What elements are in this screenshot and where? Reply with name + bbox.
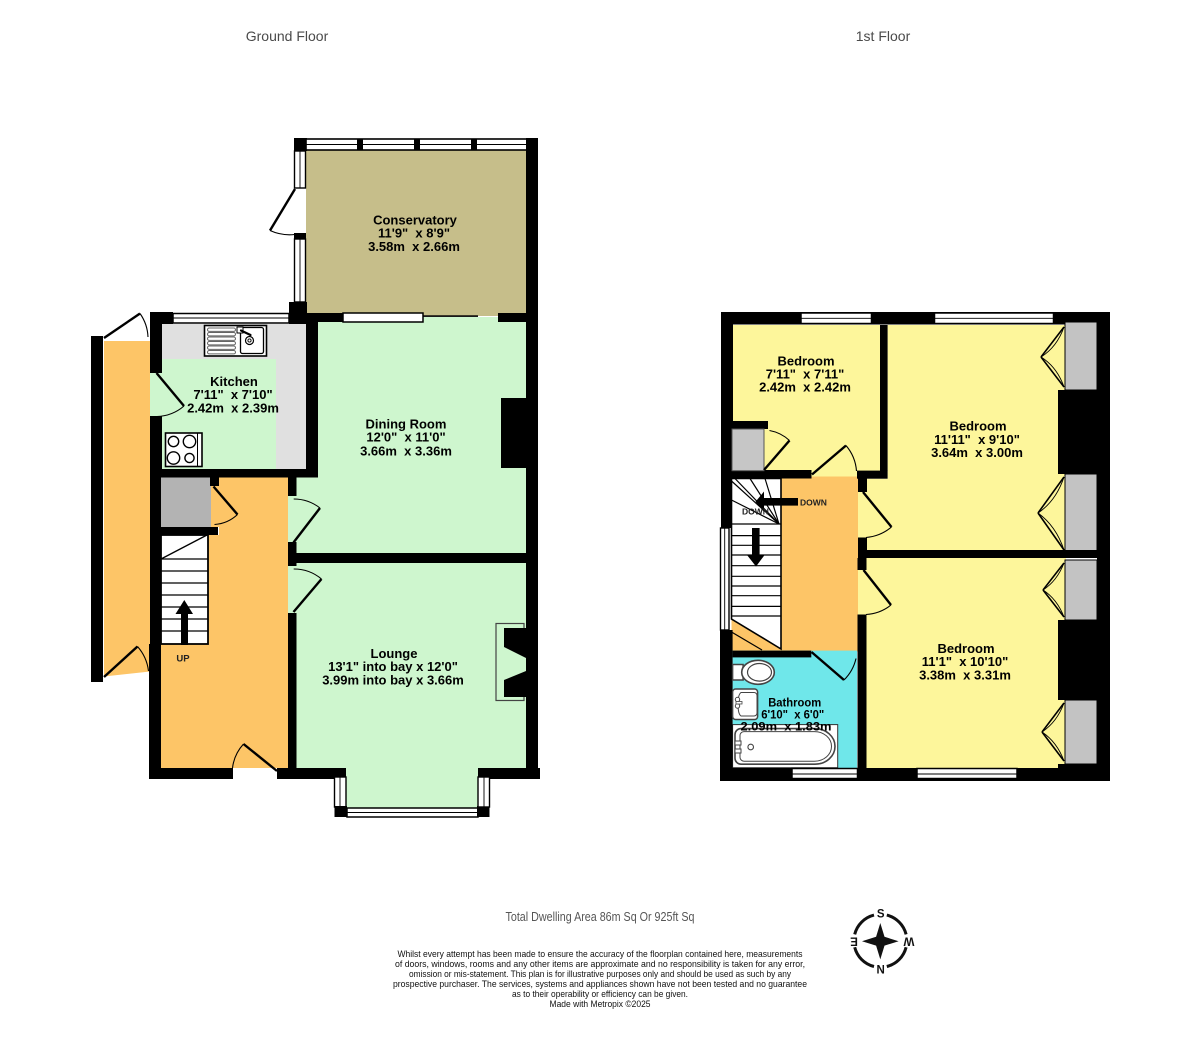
svg-text:3.38m x 3.31m: 3.38m x 3.31m	[919, 668, 1011, 683]
svg-text:S: S	[877, 909, 885, 921]
svg-text:2.09m x 1.83m: 2.09m x 1.83m	[741, 720, 832, 734]
svg-text:2.42m x 2.39m: 2.42m x 2.39m	[187, 401, 279, 416]
svg-text:12'0" x 11'0": 12'0" x 11'0"	[366, 430, 445, 445]
svg-text:Total Dwelling Area 86m Sq Or: Total Dwelling Area 86m Sq Or 925ft Sq	[506, 909, 695, 924]
svg-text:W: W	[903, 935, 914, 947]
svg-text:Made with Metropix ©2025: Made with Metropix ©2025	[550, 999, 651, 1010]
svg-text:3.64m x 3.00m: 3.64m x 3.00m	[931, 445, 1023, 460]
svg-text:2.42m x 2.42m: 2.42m x 2.42m	[759, 380, 851, 395]
svg-text:DOWN: DOWN	[742, 507, 769, 517]
svg-text:N: N	[877, 965, 885, 977]
svg-text:DOWN: DOWN	[800, 498, 827, 508]
svg-text:3.58m x 2.66m: 3.58m x 2.66m	[368, 239, 460, 254]
svg-text:3.66m x 3.36m: 3.66m x 3.36m	[360, 444, 452, 459]
svg-text:E: E	[850, 935, 858, 947]
svg-text:UP: UP	[176, 654, 190, 665]
svg-text:Ground Floor: Ground Floor	[246, 28, 329, 44]
svg-text:1st Floor: 1st Floor	[856, 28, 911, 44]
svg-text:3.99m into bay x 3.66m: 3.99m into bay x 3.66m	[322, 673, 464, 688]
